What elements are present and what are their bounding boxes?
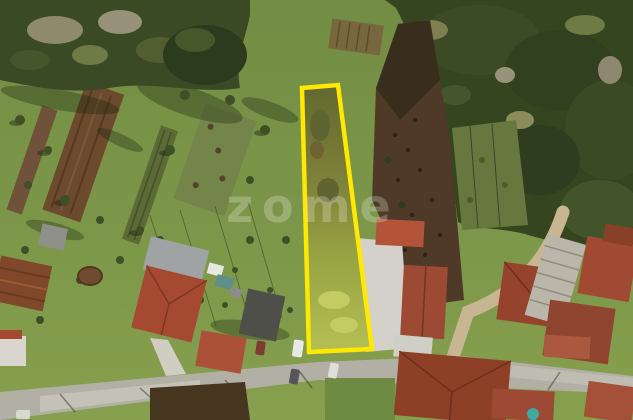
forest-clearing-garden: [452, 120, 528, 230]
round-tank: [78, 267, 102, 285]
aerial-photo: zome: [0, 0, 633, 420]
bottom-right-house3: [543, 335, 590, 359]
white-building-corner: [0, 336, 26, 366]
watermark-logo: zome: [226, 179, 400, 233]
red-roof-house-driveway: [400, 265, 448, 339]
white-car3: [16, 410, 30, 419]
red-roof-complex: [577, 236, 633, 302]
bottom-right-house1: [491, 388, 554, 420]
bottom-right-house2: [584, 381, 633, 420]
small-pool: [527, 408, 539, 420]
